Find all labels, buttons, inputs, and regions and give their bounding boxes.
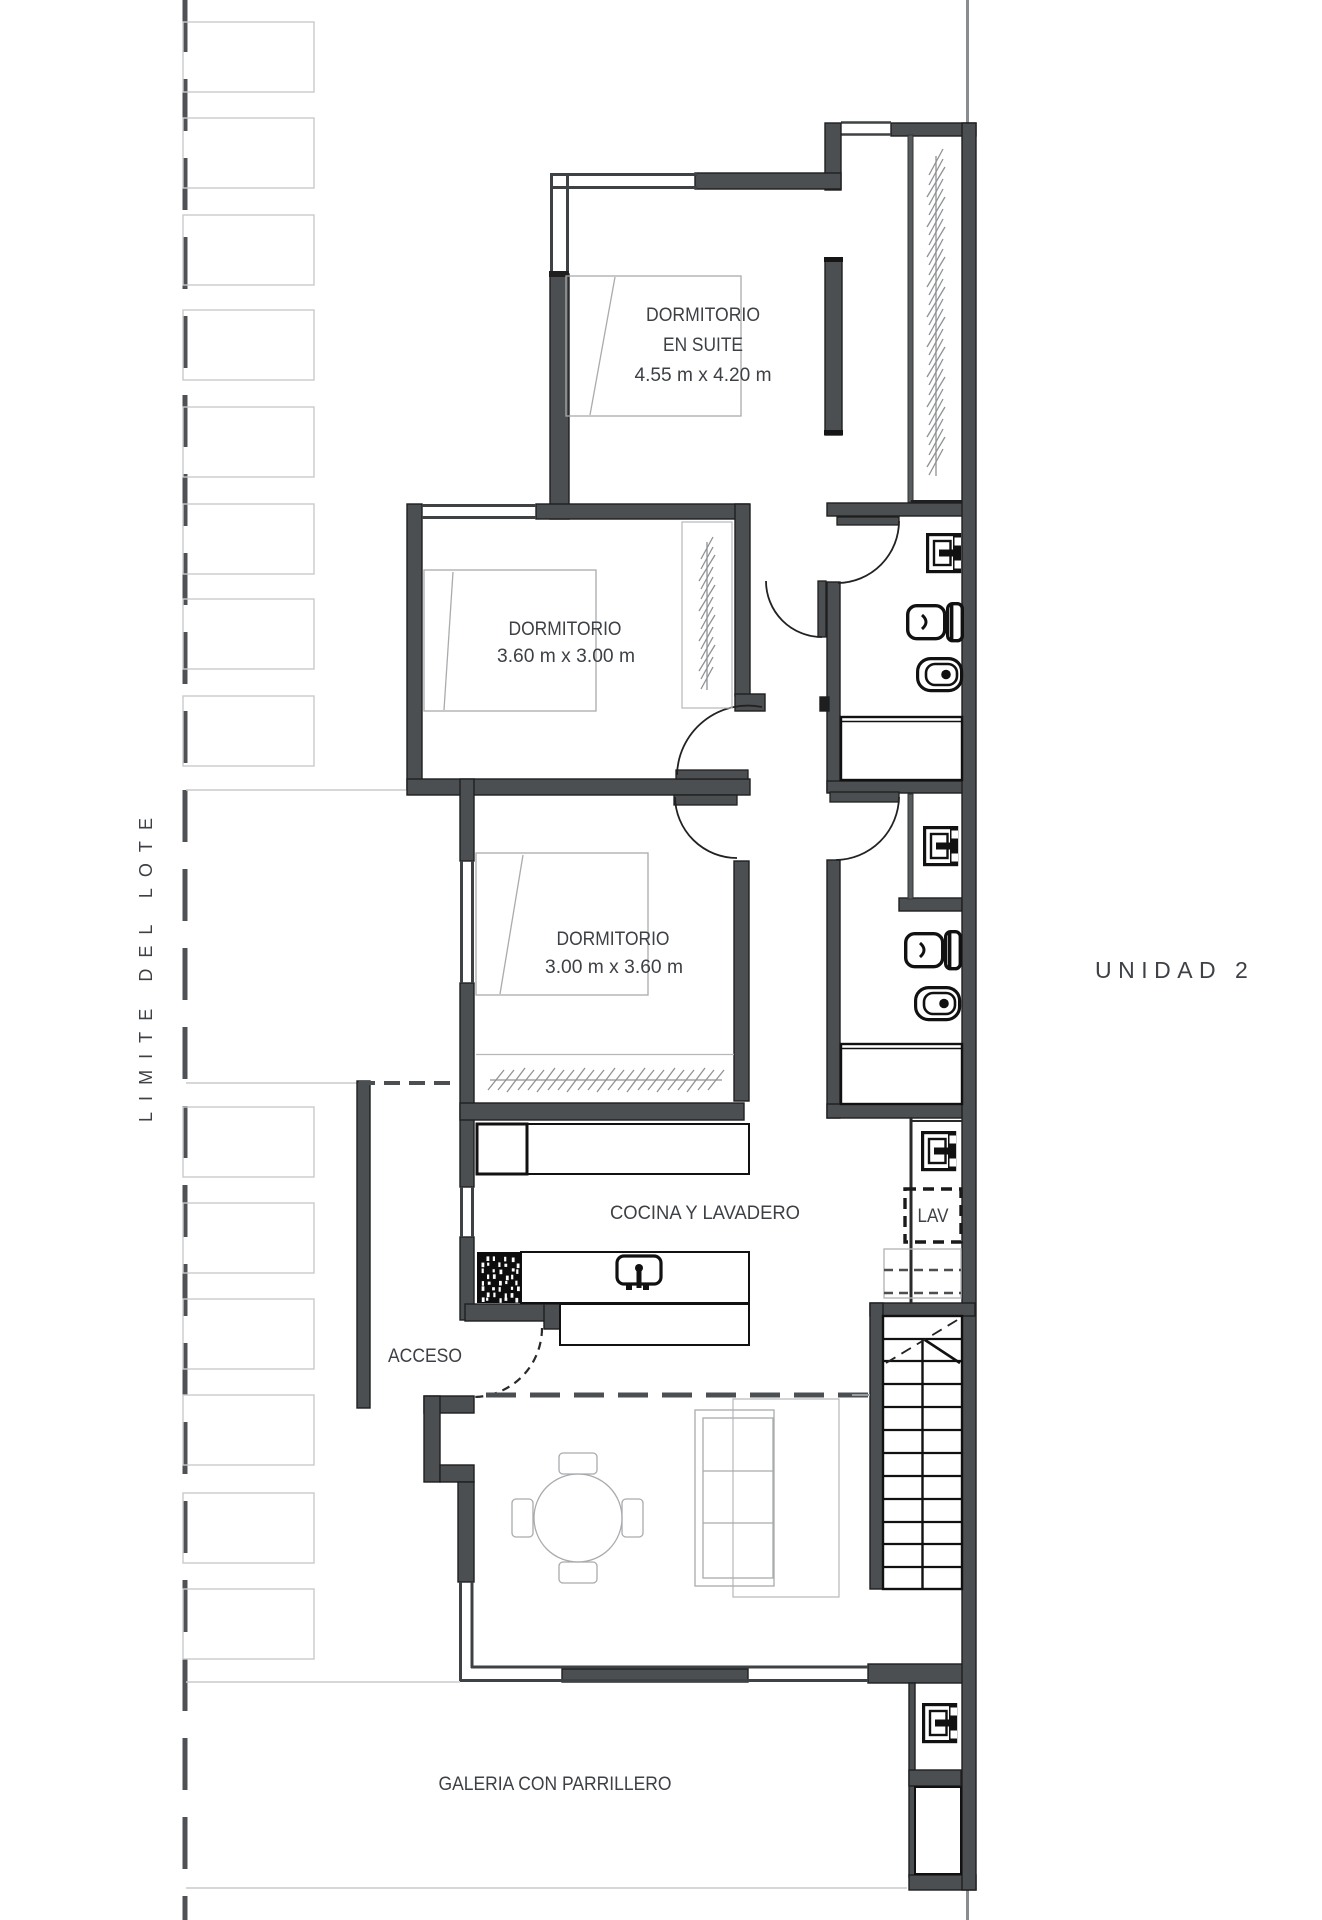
svg-text:ACCESO: ACCESO: [388, 1345, 462, 1367]
svg-text:4.55 m x 4.20 m: 4.55 m x 4.20 m: [635, 364, 772, 386]
svg-text:DORMITORIO: DORMITORIO: [509, 618, 622, 640]
svg-text:GALERIA CON PARRILLERO: GALERIA CON PARRILLERO: [439, 1773, 672, 1795]
svg-text:LIMITE DEL LOTE: LIMITE DEL LOTE: [136, 812, 156, 1122]
svg-text:UNIDAD 2: UNIDAD 2: [1095, 957, 1254, 983]
svg-text:3.00 m x 3.60 m: 3.00 m x 3.60 m: [545, 956, 683, 978]
svg-text:LAV: LAV: [918, 1205, 949, 1227]
svg-text:COCINA Y LAVADERO: COCINA Y LAVADERO: [610, 1202, 800, 1224]
svg-text:DORMITORIO: DORMITORIO: [557, 928, 670, 950]
svg-text:EN SUITE: EN SUITE: [663, 334, 743, 356]
svg-text:3.60 m x 3.00 m: 3.60 m x 3.00 m: [497, 645, 635, 667]
svg-text:DORMITORIO: DORMITORIO: [646, 304, 760, 326]
